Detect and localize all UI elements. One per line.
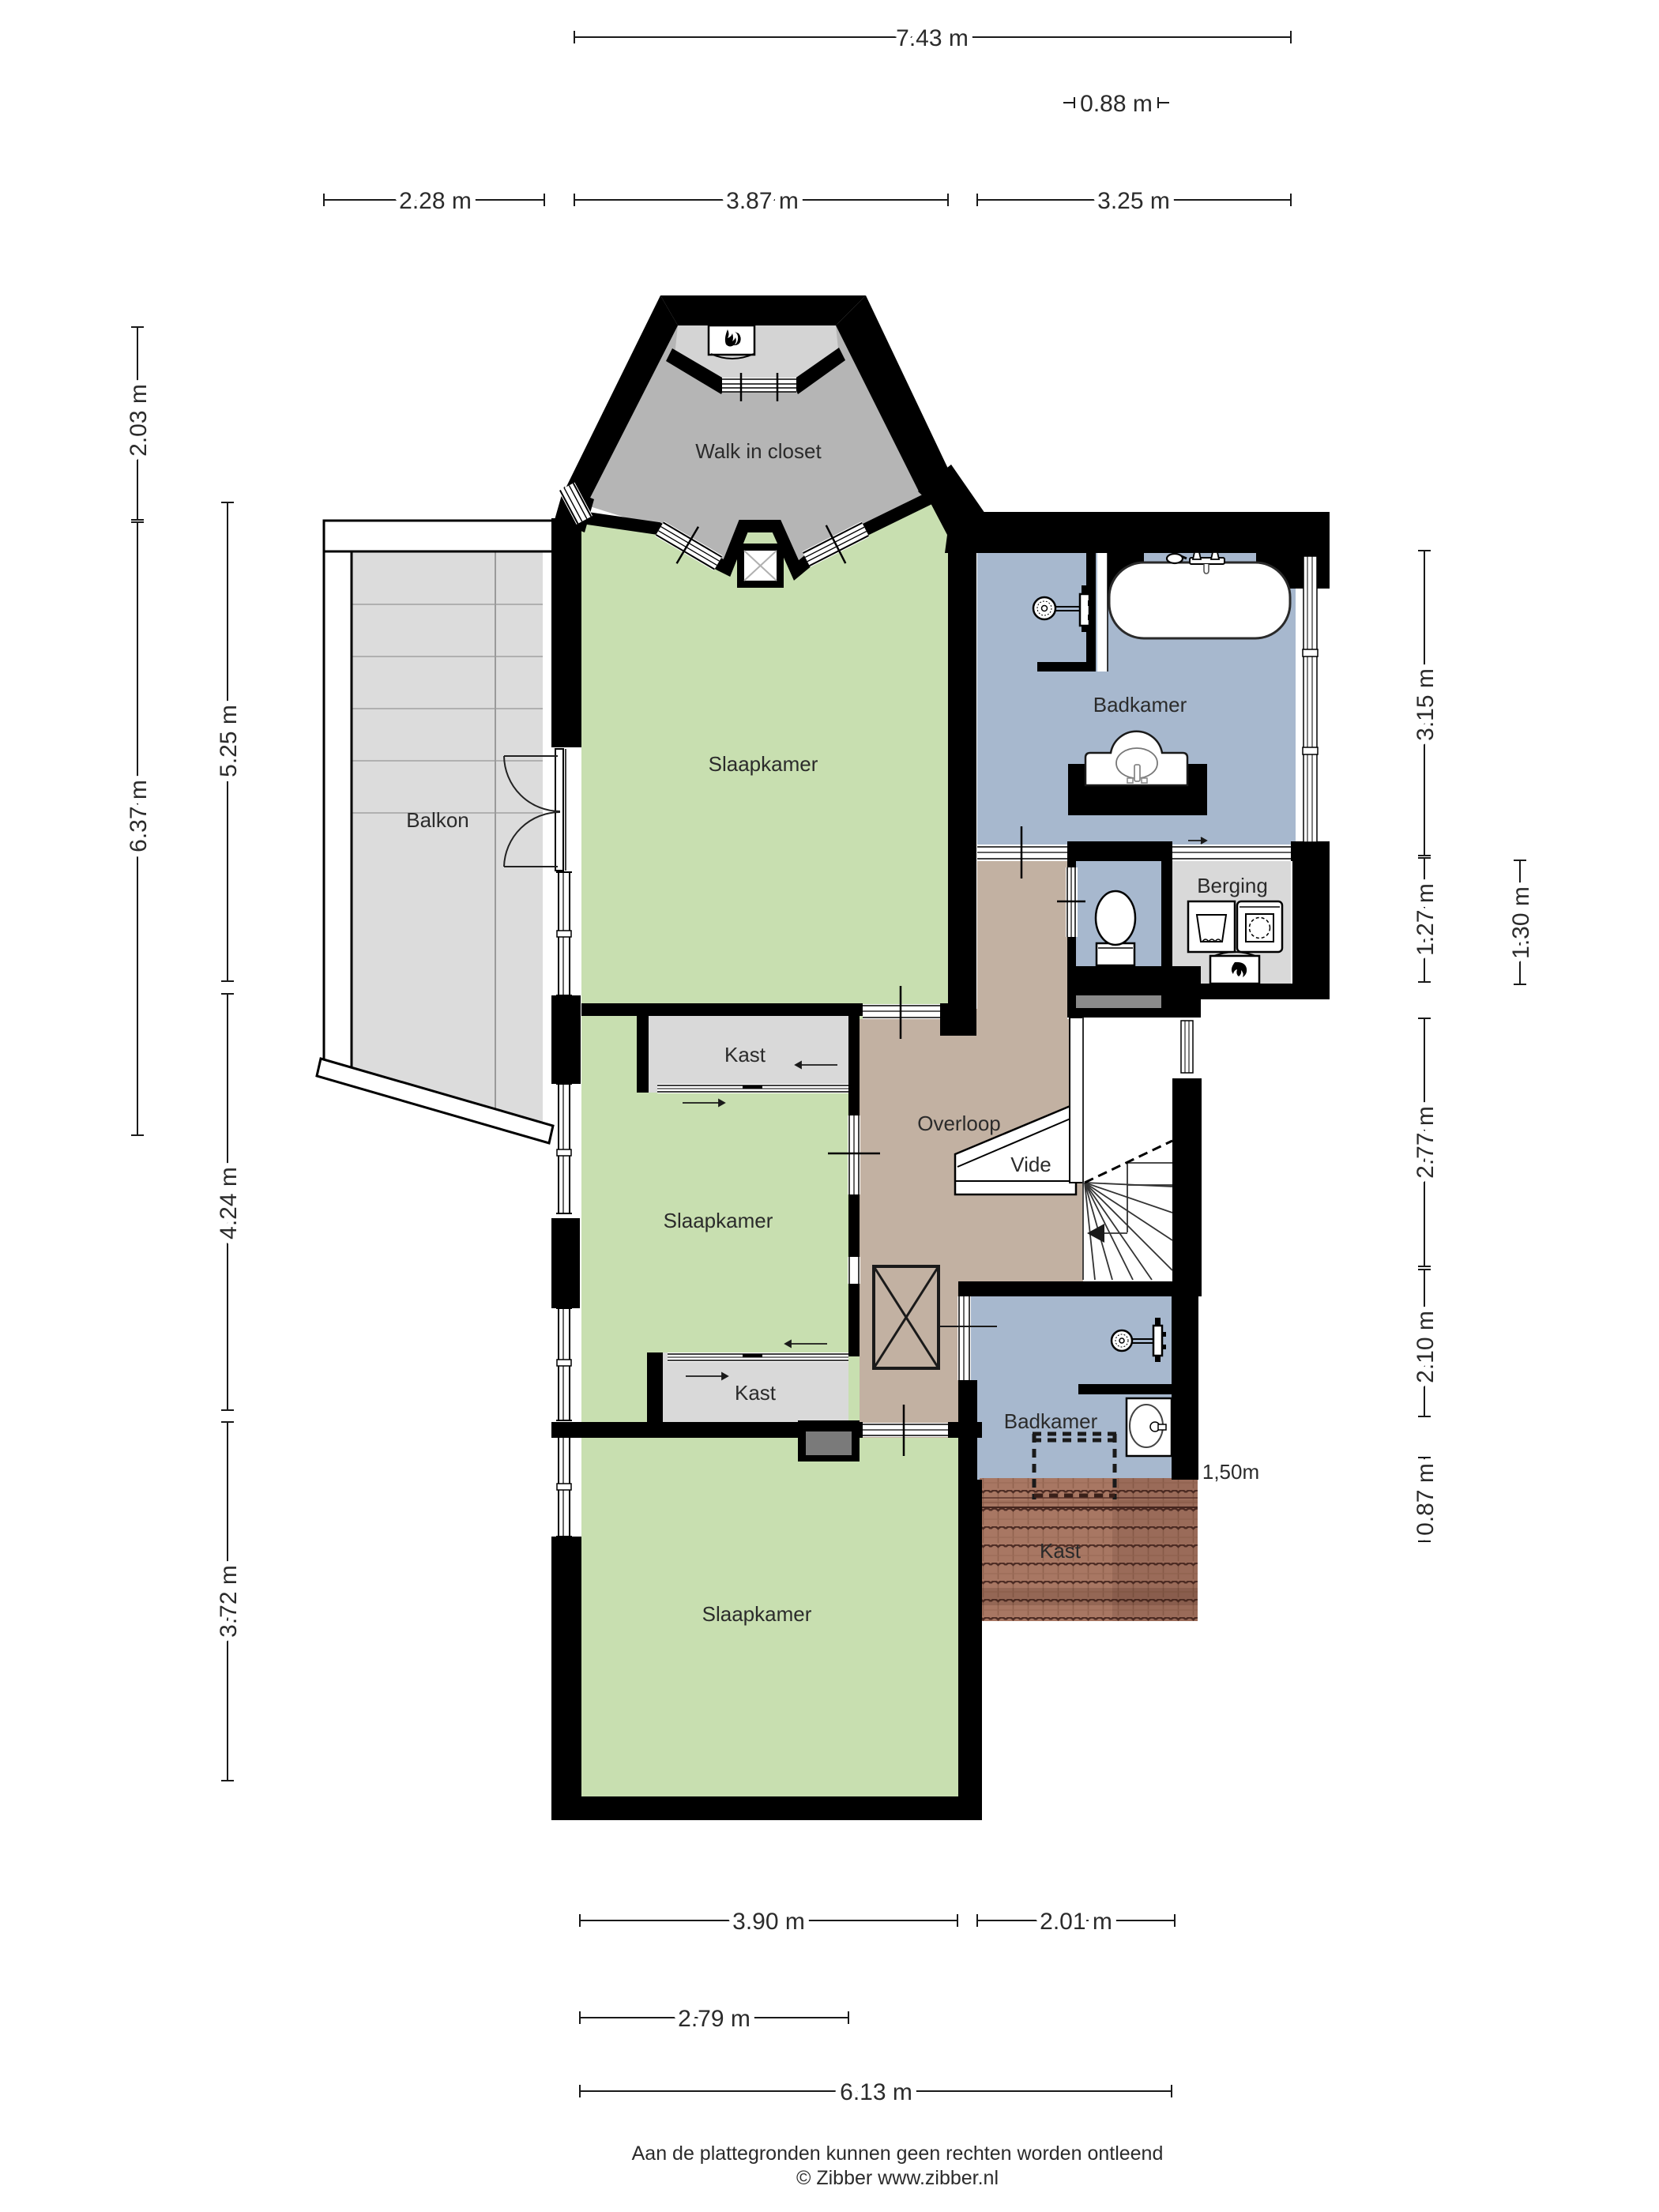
- svg-text:Vide: Vide: [1010, 1153, 1051, 1176]
- svg-text:Kast: Kast: [724, 1043, 766, 1066]
- svg-text:Overloop: Overloop: [917, 1112, 1001, 1135]
- svg-text:6.37 m: 6.37 m: [126, 780, 152, 852]
- svg-text:Aan de plattegronden kunnen ge: Aan de plattegronden kunnen geen rechten…: [632, 2142, 1164, 2165]
- svg-text:3.72 m: 3.72 m: [216, 1565, 242, 1638]
- svg-text:6.13 m: 6.13 m: [840, 2079, 912, 2105]
- svg-text:Berging: Berging: [1197, 874, 1268, 897]
- svg-text:5.25 m: 5.25 m: [216, 705, 242, 777]
- svg-text:Kast: Kast: [735, 1381, 777, 1405]
- svg-text:0.88 m: 0.88 m: [1080, 91, 1153, 117]
- svg-text:Balkon: Balkon: [406, 808, 469, 832]
- svg-text:Badkamer: Badkamer: [1093, 693, 1187, 717]
- svg-text:3.25 m: 3.25 m: [1097, 188, 1170, 214]
- svg-text:0.87 m: 0.87 m: [1413, 1463, 1439, 1536]
- svg-text:Badkamer: Badkamer: [1004, 1409, 1098, 1433]
- svg-text:Walk in closet: Walk in closet: [695, 439, 822, 463]
- svg-text:2.10 m: 2.10 m: [1413, 1311, 1439, 1383]
- svg-text:1.30 m: 1.30 m: [1508, 886, 1534, 959]
- svg-text:4.24 m: 4.24 m: [216, 1167, 242, 1240]
- svg-text:2.03 m: 2.03 m: [126, 384, 152, 457]
- svg-text:© Zibber www.zibber.nl: © Zibber www.zibber.nl: [796, 2167, 999, 2189]
- svg-text:3.87 m: 3.87 m: [726, 188, 799, 214]
- svg-text:1.27 m: 1.27 m: [1413, 883, 1439, 956]
- svg-text:3.15 m: 3.15 m: [1413, 668, 1439, 741]
- svg-text:2.01 m: 2.01 m: [1040, 1909, 1112, 1935]
- svg-text:2.28 m: 2.28 m: [399, 188, 472, 214]
- svg-text:Slaapkamer: Slaapkamer: [709, 752, 818, 776]
- svg-text:Kast: Kast: [1040, 1539, 1082, 1563]
- svg-text:1,50m: 1,50m: [1202, 1460, 1259, 1484]
- svg-text:2.77 m: 2.77 m: [1413, 1106, 1439, 1179]
- svg-text:7.43 m: 7.43 m: [896, 25, 969, 51]
- svg-text:3.90 m: 3.90 m: [732, 1909, 805, 1935]
- svg-text:Slaapkamer: Slaapkamer: [664, 1209, 773, 1232]
- svg-text:Slaapkamer: Slaapkamer: [702, 1602, 812, 1626]
- svg-text:2.79 m: 2.79 m: [678, 2006, 750, 2032]
